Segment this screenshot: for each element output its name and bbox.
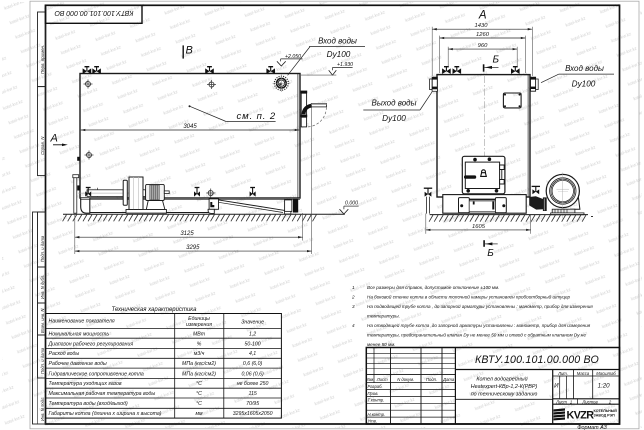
svg-text:Лист: Лист: [555, 399, 567, 404]
svg-text:+1.930: +1.930: [337, 62, 353, 68]
svg-text:не более 250: не более 250: [237, 381, 269, 387]
svg-text:Габариты котла (длинна х ширин: Габариты котла (длинна х ширина х высота…: [49, 411, 162, 417]
svg-text:Вход воды: Вход воды: [565, 64, 604, 73]
svg-text:1: 1: [570, 399, 572, 404]
svg-text:1:20: 1:20: [598, 383, 611, 390]
svg-text:МВт: МВт: [193, 331, 206, 337]
svg-text:1,2: 1,2: [249, 331, 256, 337]
svg-text:КВТУ.100.101.00.000 ВО: КВТУ.100.101.00.000 ВО: [54, 9, 134, 16]
svg-text:KVZR: KVZR: [567, 409, 595, 421]
svg-text:960: 960: [478, 43, 488, 49]
svg-text:Единицы: Единицы: [188, 316, 210, 322]
svg-text:Гидравлическое сопротивление к: Гидравлическое сопротивление котла: [49, 371, 144, 377]
svg-text:Лит.: Лит.: [557, 371, 568, 376]
svg-text:На отводящей трубе котла ,до з: На отводящей трубе котла ,до запорной ар…: [367, 322, 591, 328]
svg-text:%: %: [197, 341, 202, 347]
svg-text:ЗАВОД РЭП: ЗАВОД РЭП: [594, 414, 616, 418]
svg-text:Инв. N подл.: Инв. N подл.: [40, 397, 45, 421]
svg-text:Dy100: Dy100: [572, 80, 596, 89]
svg-text:1605: 1605: [472, 224, 486, 230]
svg-text:2: 2: [351, 294, 355, 299]
svg-text:Подп. и дата: Подп. и дата: [40, 235, 45, 262]
svg-text:температуры.: температуры.: [367, 313, 400, 318]
svg-text:1430: 1430: [475, 23, 489, 29]
svg-text:Масштаб: Масштаб: [596, 371, 616, 376]
svg-text:измерения: измерения: [186, 322, 212, 328]
svg-text:°С: °С: [196, 381, 202, 387]
svg-text:Техническая характеристика: Техническая характеристика: [112, 307, 198, 313]
svg-text:Heatexpert-КВр-1,2-К(РВР): Heatexpert-КВр-1,2-К(РВР): [471, 384, 538, 390]
svg-text:Номинальная мощность: Номинальная мощность: [49, 331, 110, 337]
svg-text:Справ. N: Справ. N: [40, 136, 45, 155]
svg-text:4,1: 4,1: [249, 351, 256, 357]
svg-text:Взам. инв. N: Взам. инв. N: [40, 308, 45, 333]
svg-text:Рабочее давление воды: Рабочее давление воды: [49, 361, 107, 367]
svg-text:70/95: 70/95: [246, 401, 259, 407]
svg-text:Н.контр.: Н.контр.: [368, 412, 386, 417]
svg-text:4: 4: [352, 323, 355, 328]
svg-text:1260: 1260: [476, 32, 490, 38]
svg-text:Dy100: Dy100: [382, 114, 406, 123]
svg-text:температуры, предохранительный: температуры, предохранительный клапан Dy…: [367, 331, 586, 337]
svg-text:см. п. 2: см. п. 2: [237, 111, 277, 122]
svg-text:В: В: [186, 45, 193, 57]
svg-text:3125: 3125: [180, 231, 194, 237]
svg-text:°С: °С: [196, 391, 202, 397]
svg-text:КОТЕЛЬНЫЙ: КОТЕЛЬНЫЙ: [594, 409, 618, 413]
svg-text:0,6 (6,0): 0,6 (6,0): [243, 361, 263, 367]
svg-text:Температура уходящих газов: Температура уходящих газов: [49, 381, 122, 387]
svg-text:Температура воды (вход/выход): Температура воды (вход/выход): [49, 401, 128, 407]
svg-text:Подп. и дата: Подп. и дата: [40, 347, 45, 374]
svg-text:°С: °С: [196, 401, 202, 407]
svg-text:Котел водогрейный: Котел водогрейный: [476, 376, 527, 383]
svg-text:Масса: Масса: [577, 371, 590, 376]
svg-text:Инв. N дубл.: Инв. N дубл.: [40, 275, 45, 299]
svg-text:МПа (кгс/см2): МПа (кгс/см2): [182, 361, 216, 367]
svg-text:N докум.: N докум.: [397, 377, 414, 382]
svg-text:3045: 3045: [183, 124, 197, 130]
svg-text:На подводящей трубе котла ,: На подводящей трубе котла , до запорной …: [367, 303, 593, 309]
svg-text:Дата: Дата: [442, 377, 455, 382]
svg-text:Диапазон рабочего регулировани: Диапазон рабочего регулирования: [48, 341, 134, 347]
svg-text:Вход воды: Вход воды: [318, 36, 357, 45]
svg-text:Наименование показателя: Наименование показателя: [49, 319, 115, 325]
svg-text:Б: Б: [487, 248, 494, 259]
svg-text:Все размеры для справок, допус: Все размеры для справок, допустимое откл…: [367, 285, 499, 290]
svg-text:И: И: [554, 383, 559, 390]
svg-text:мм: мм: [195, 411, 203, 417]
svg-text:по техническому заданию: по техническому заданию: [471, 391, 538, 397]
svg-text:Формат А3: Формат А3: [577, 425, 607, 430]
svg-text:А: А: [478, 9, 487, 21]
svg-text:Лист: Лист: [376, 377, 388, 382]
svg-text:Изм.: Изм.: [366, 377, 375, 382]
svg-text:3295: 3295: [186, 245, 200, 251]
svg-text:МПа (кгс/см2): МПа (кгс/см2): [182, 371, 216, 377]
svg-text:Перв. примен.: Перв. примен.: [40, 45, 45, 74]
svg-text:3295х1605х2050: 3295х1605х2050: [233, 411, 273, 417]
svg-text:Максимальная рабочая температу: Максимальная рабочая температура воды: [49, 391, 156, 397]
svg-text:менее 50 мм.: менее 50 мм.: [367, 342, 396, 347]
svg-text:Выход воды: Выход воды: [372, 98, 417, 107]
svg-text:115: 115: [248, 391, 256, 397]
svg-text:м3/ч: м3/ч: [194, 351, 205, 357]
svg-text:1: 1: [352, 285, 355, 290]
svg-text:Подп.: Подп.: [426, 377, 437, 382]
svg-text:Листов: Листов: [581, 399, 598, 404]
svg-text:Расход воды: Расход воды: [49, 351, 80, 357]
svg-text:Пров.: Пров.: [368, 391, 379, 396]
svg-text:Значение: Значение: [241, 319, 264, 325]
svg-text:КВТУ.100.101.00.000 ВО: КВТУ.100.101.00.000 ВО: [475, 354, 599, 366]
svg-text:0,06 (0,6): 0,06 (0,6): [241, 371, 263, 377]
svg-text:А: А: [50, 133, 58, 145]
svg-text:Т.контр.: Т.контр.: [368, 398, 385, 403]
svg-text:Утв.: Утв.: [368, 419, 378, 424]
svg-text:Dy100: Dy100: [327, 50, 351, 59]
svg-text:0.000: 0.000: [345, 201, 358, 207]
svg-text:3: 3: [352, 304, 355, 309]
svg-text:На боковой стенке котла в обла: На боковой стенке котла в области топочн…: [367, 293, 571, 299]
svg-text:50-100: 50-100: [245, 341, 261, 347]
svg-text:Б: Б: [493, 55, 500, 66]
svg-text:Разраб.: Разраб.: [368, 384, 383, 389]
